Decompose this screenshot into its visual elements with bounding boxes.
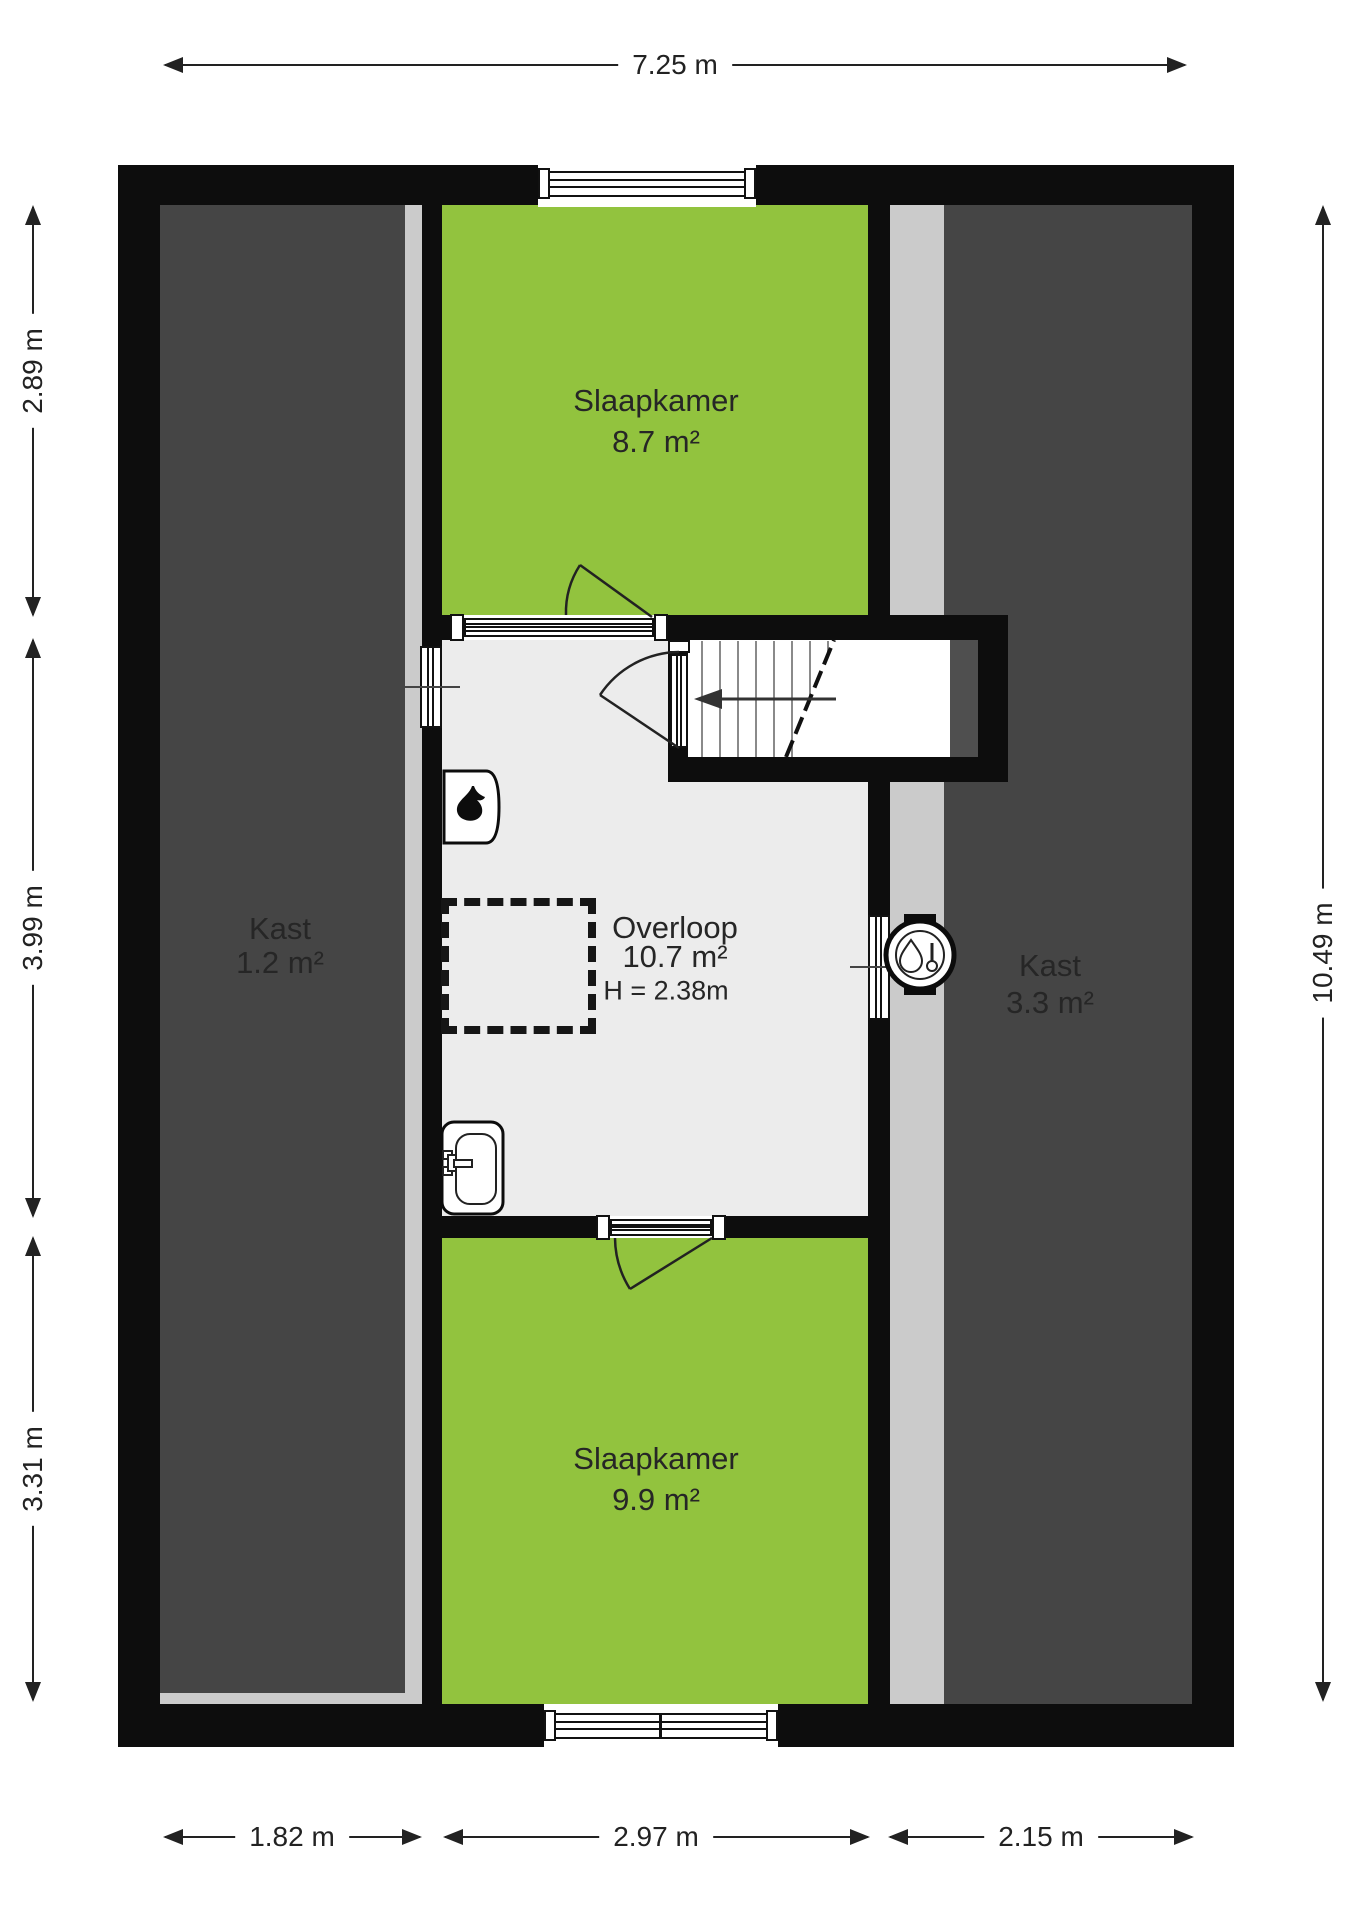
bedroom-bottom-door-jamb-right: [712, 1215, 726, 1240]
dim-label-top: 7.25 m: [618, 45, 732, 85]
floor-plan-canvas: Slaapkamer 8.7 m² Kast 1.2 m² Overloop 1…: [0, 0, 1358, 1920]
bedroom-bottom-area: 9.9 m²: [612, 1482, 700, 1518]
closet-left-edge-strip: [405, 205, 422, 1704]
bedroom-top-door-jamb-left: [450, 614, 464, 641]
bottom-window-jamb-right: [766, 1710, 778, 1741]
landing-ceiling-height: H = 2.38m: [603, 976, 728, 1007]
top-window-jamb-left: [538, 168, 550, 199]
stair-door-panel: [670, 654, 688, 748]
bedroom-bottom-door-jamb-left: [596, 1215, 610, 1240]
bedroom-top-name: Slaapkamer: [573, 383, 738, 419]
bedroom-top-area: 8.7 m²: [612, 424, 700, 460]
shower-zone-dashed-square: [441, 898, 596, 1034]
top-window-jamb-right: [744, 168, 756, 199]
closet-right-area: 3.3 m²: [1006, 985, 1094, 1021]
wall-right-inner-upper: [868, 205, 890, 915]
closet-left-bottom-strip: [160, 1693, 405, 1704]
dim-label-left-middle: 3.99 m: [13, 871, 53, 985]
dim-label-bottom-right: 2.15 m: [984, 1817, 1098, 1857]
bedroom-bottom-name: Slaapkamer: [573, 1441, 738, 1477]
dim-label-bottom-center: 2.97 m: [599, 1817, 713, 1857]
dim-label-right: 10.49 m: [1303, 888, 1343, 1017]
dim-label-left-top: 2.89 m: [13, 314, 53, 428]
landing-right-window: [868, 915, 890, 1020]
bedroom-top-door-jamb-right: [654, 614, 668, 641]
top-window: [540, 171, 754, 197]
landing-left-window: [420, 646, 442, 728]
bottom-window-jamb-left: [544, 1710, 556, 1741]
closet-left-name: Kast: [249, 911, 311, 947]
landing-area: 10.7 m²: [622, 939, 727, 975]
wall-right-inner-lower: [868, 1020, 890, 1704]
bedroom-top-door-panel: [464, 618, 654, 637]
closet-left-area: 1.2 m²: [236, 945, 324, 981]
closet-right-edge-strip: [890, 205, 944, 1704]
closet-right-name: Kast: [1019, 948, 1081, 984]
bedroom-bottom-door-panel: [610, 1219, 712, 1236]
stair-door-jamb: [668, 640, 690, 653]
dim-label-left-bottom: 3.31 m: [13, 1412, 53, 1526]
stairwell-inner-shadow: [950, 640, 978, 757]
bottom-window-divider: [659, 1713, 662, 1739]
stairwell-floor: [688, 640, 950, 757]
wall-left-inner-upper: [422, 205, 442, 646]
dim-label-bottom-left: 1.82 m: [235, 1817, 349, 1857]
